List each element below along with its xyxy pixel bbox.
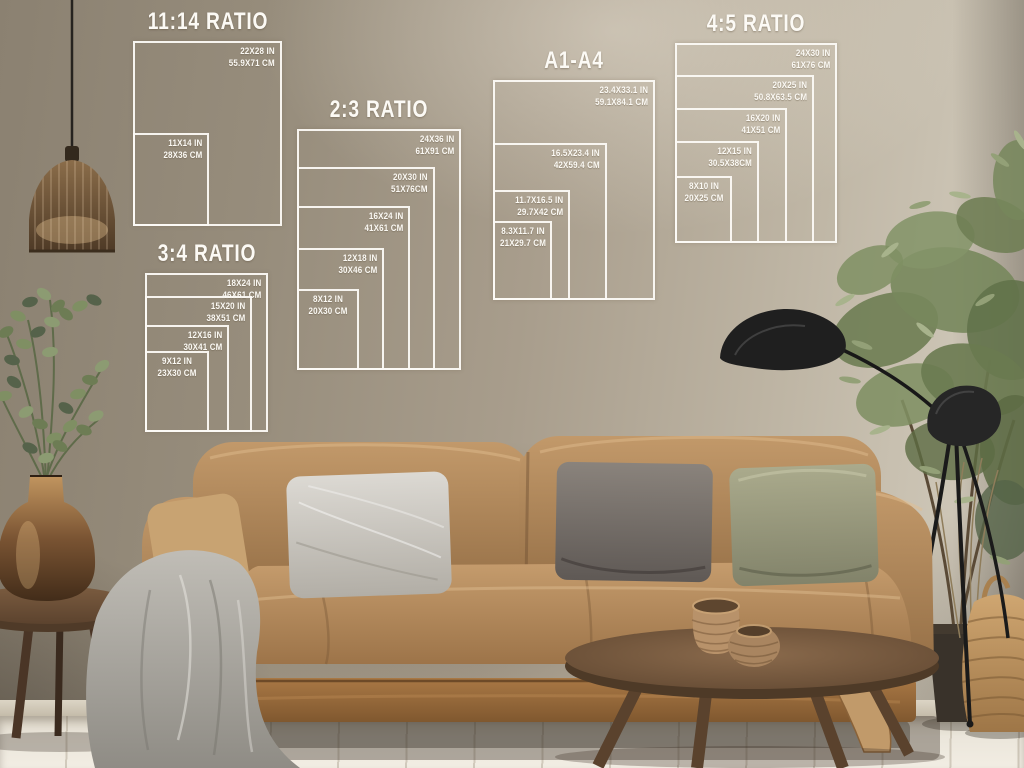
size-guide-11-14-ratio: 11:14 RATIO 22X28 IN 55.9X71 CM 11X14 IN…	[133, 41, 282, 226]
size-guide-2-3-ratio: 2:3 RATIO 24X36 IN 61X91 CM 20X30 IN 51X…	[297, 129, 461, 370]
size-label: 8X12 IN 20X30 CM	[308, 294, 347, 319]
size-label: 22X28 IN 55.9X71 CM	[229, 46, 275, 71]
living-room-print-size-guide: 11:14 RATIO 22X28 IN 55.9X71 CM 11X14 IN…	[0, 0, 1024, 768]
bronze-vase	[0, 476, 95, 601]
size-guide-4-5-ratio: 4:5 RATIO 24X30 IN 61X76 CM 20X25 IN 50.…	[675, 43, 837, 243]
pillow-silver	[286, 471, 452, 599]
size-guide-title: 3:4 RATIO	[157, 242, 256, 266]
size-label: 12X18 IN 30X46 CM	[338, 253, 377, 278]
size-label: 24X30 IN 61X76 CM	[791, 48, 830, 73]
eucalyptus-plant	[0, 285, 111, 482]
size-rect: 8X12 IN 20X30 CM	[297, 289, 359, 370]
size-label: 20X30 IN 51X76CM	[391, 172, 428, 197]
size-rect: 11X14 IN 28X36 CM	[133, 133, 209, 226]
size-guide-title: 4:5 RATIO	[707, 12, 806, 36]
size-rect: 9X12 IN 23X30 CM	[145, 351, 209, 432]
size-label: 9X12 IN 23X30 CM	[157, 356, 196, 381]
size-guide-title: A1-A4	[544, 49, 603, 73]
size-rect: 8X10 IN 20X25 CM	[675, 176, 732, 243]
decor-vessel	[728, 625, 780, 667]
size-rect: 8.3X11.7 IN 21X29.7 CM	[493, 221, 552, 300]
size-guide-title: 11:14 RATIO	[147, 10, 267, 34]
pillow-olive	[729, 463, 879, 586]
size-label: 11.7X16.5 IN 29.7X42 CM	[515, 195, 563, 220]
size-label: 12X15 IN 30.5X38CM	[708, 146, 752, 171]
eucalyptus-leaves	[0, 285, 111, 465]
size-label: 11X14 IN 28X36 CM	[163, 138, 202, 163]
size-guide-a1-a4: A1-A4 23.4X33.1 IN 59.1X84.1 CM 16.5X23.…	[493, 80, 655, 300]
size-guide-3-4-ratio: 3:4 RATIO 18X24 IN 46X61 CM 15X20 IN 38X…	[145, 273, 268, 432]
size-label: 16X20 IN 41X51 CM	[741, 113, 780, 138]
lamp-shade-large	[720, 309, 846, 370]
size-label: 15X20 IN 38X51 CM	[206, 301, 245, 326]
size-label: 16X24 IN 41X61 CM	[364, 211, 403, 236]
size-label: 8X10 IN 20X25 CM	[684, 181, 723, 206]
size-label: 8.3X11.7 IN 21X29.7 CM	[499, 226, 545, 251]
size-label: 20X25 IN 50.8X63.5 CM	[754, 80, 807, 105]
size-guide-title: 2:3 RATIO	[330, 98, 429, 122]
size-label: 16.5X23.4 IN 42X59.4 CM	[551, 148, 600, 173]
pendant-lamp	[29, 0, 115, 251]
pillow-gray	[555, 462, 713, 583]
size-label: 24X36 IN 61X91 CM	[415, 134, 454, 159]
size-label: 23.4X33.1 IN 59.1X84.1 CM	[595, 85, 648, 110]
